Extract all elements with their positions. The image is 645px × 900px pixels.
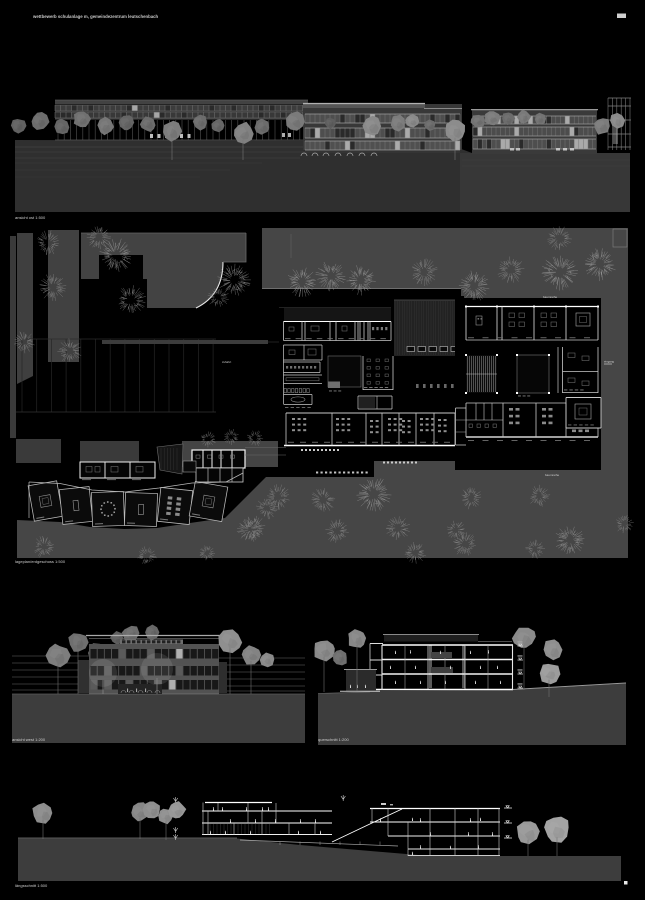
svg-text:ansicht ost 1:500: ansicht ost 1:500 — [15, 215, 46, 220]
svg-text:baumreihe: baumreihe — [545, 473, 560, 477]
svg-text:längsschnitt 1:500: längsschnitt 1:500 — [15, 883, 48, 888]
svg-text:zufahrt: zufahrt — [222, 360, 231, 364]
svg-text:querschnitt 1:200: querschnitt 1:200 — [318, 737, 349, 742]
svg-text:lageplan/erdgeschoss 1:500: lageplan/erdgeschoss 1:500 — [15, 559, 66, 564]
svg-text:eingang: eingang — [604, 360, 614, 364]
svg-text:baumreihe: baumreihe — [543, 295, 558, 299]
svg-text:wettbewerb schulanlage m, geme: wettbewerb schulanlage m, gemeindezentru… — [32, 14, 158, 19]
svg-text:ansicht west 1:200: ansicht west 1:200 — [12, 737, 46, 742]
